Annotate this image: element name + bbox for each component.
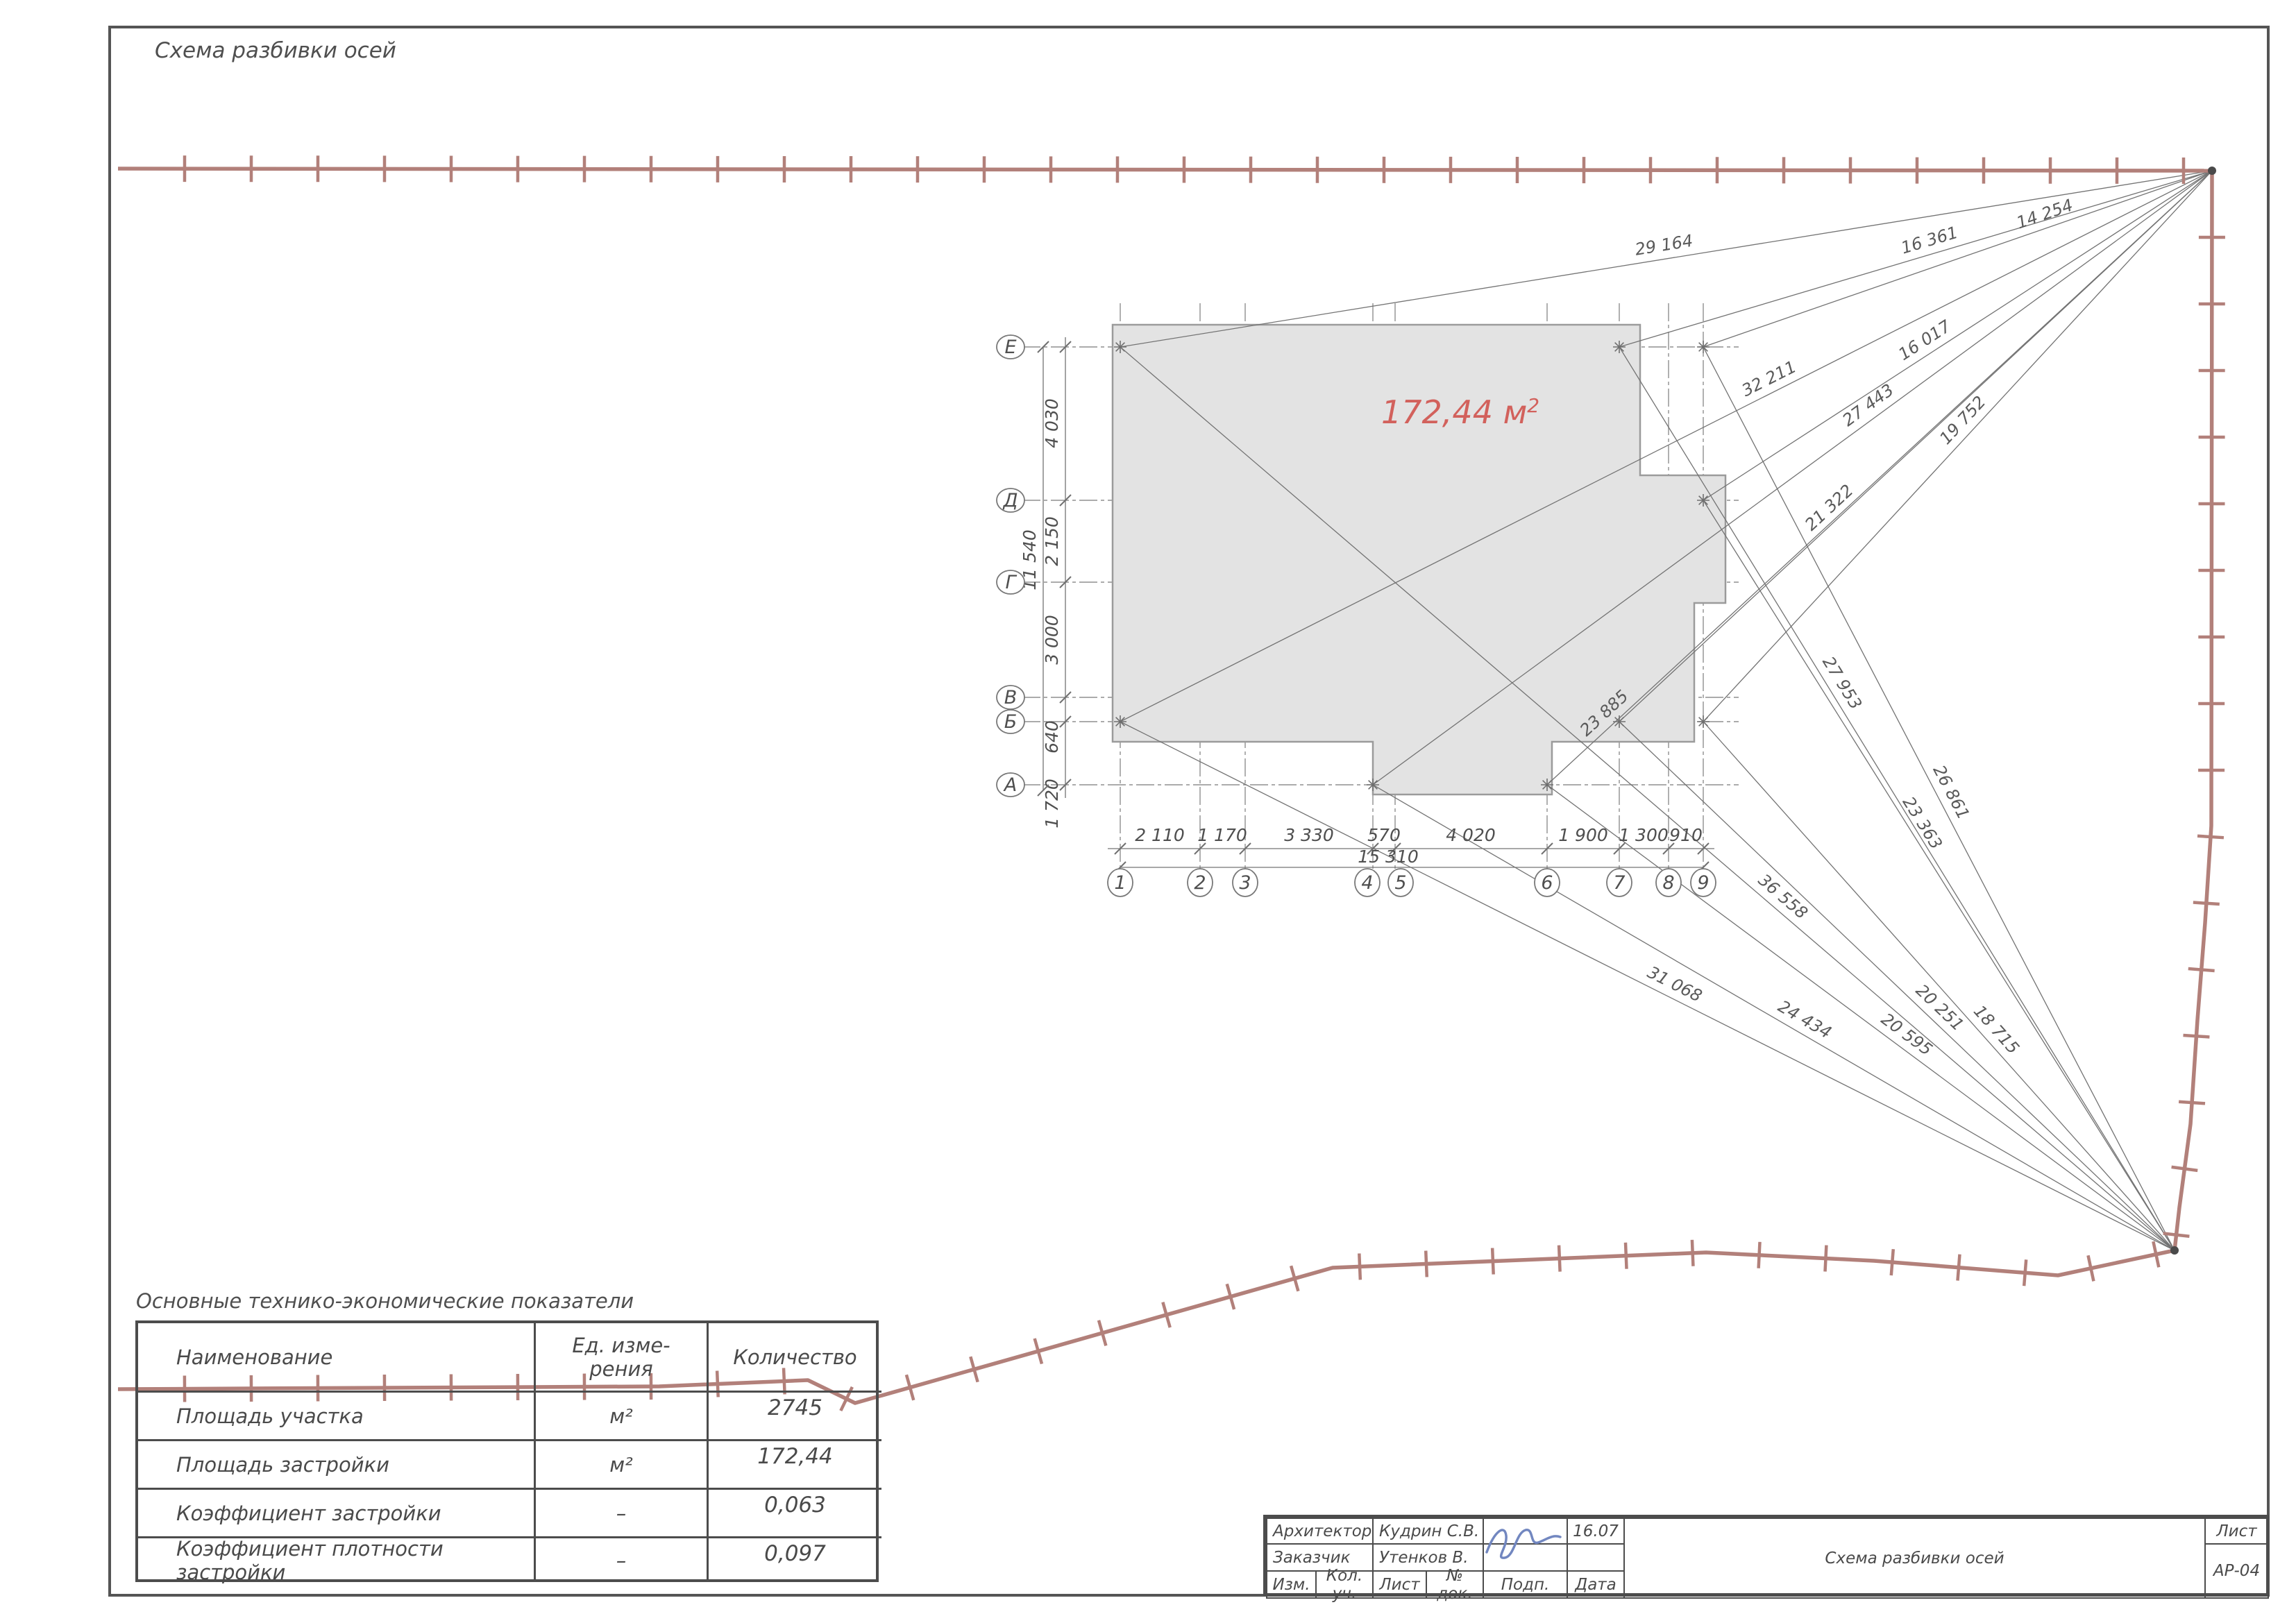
axis-grid [1022, 303, 1739, 871]
axis-label-number: 5 [1394, 872, 1406, 894]
survey-distance-label: 20 595 [1877, 1009, 1936, 1060]
axis-label-letter: Е [1004, 337, 1016, 358]
tec-header-qty: Количество [709, 1323, 881, 1393]
axis-label-number: 3 [1239, 872, 1251, 894]
dim-label-horizontal: 2 110 [1135, 825, 1185, 845]
axis-bubbles: ЕДГВБА123456789 [997, 335, 1716, 897]
tec-row-value: 172,44 [709, 1441, 881, 1490]
tec-row-name: Коэффициент застройки [138, 1490, 536, 1538]
tec-header-unit-line2: рения [572, 1357, 670, 1381]
tec-row-value: 0,063 [709, 1490, 881, 1538]
tec-header-unit-line1: Ед. изме- [572, 1334, 670, 1357]
axis-label-letter: Б [1004, 711, 1018, 733]
dim-label-vertical: 2 150 [1042, 516, 1062, 566]
axis-label-number: 7 [1613, 872, 1625, 894]
survey-distance-label: 27 443 [1839, 380, 1897, 430]
dim-label-horizontal: 1 300 [1619, 825, 1669, 845]
survey-distance-label: 26 861 [1929, 762, 1973, 822]
axis-label-number: 4 [1361, 872, 1373, 894]
tb-doc-title: Схема разбивки осей [1623, 1518, 2206, 1599]
survey-distance-label: 18 715 [1970, 1001, 2023, 1057]
survey-distance-label: 24 434 [1775, 996, 1835, 1042]
tb-label-podp: Подп. [1483, 1570, 1568, 1599]
survey-distance-label: 16 017 [1895, 316, 1955, 364]
survey-distance-label: 20 251 [1912, 980, 1968, 1035]
page-title: Схема разбивки осей [155, 38, 396, 63]
tec-row-unit: м² [536, 1393, 709, 1441]
tb-role-architect: Архитектор [1266, 1518, 1374, 1545]
tb-sheet-number: АР-04 [2204, 1543, 2269, 1599]
dim-label-vertical-total: 11 540 [1020, 529, 1040, 590]
tec-row-value: 2745 [709, 1393, 881, 1441]
tec-header-unit: Ед. изме- рения [536, 1323, 709, 1393]
dim-label-horizontal: 910 [1669, 825, 1703, 845]
tec-row-value: 0,097 [709, 1538, 881, 1582]
tb-sheet-label: Лист [2204, 1518, 2269, 1545]
boundary-corner-point [2208, 167, 2216, 175]
boundary-corner-point [2170, 1246, 2179, 1255]
dimensions: 2 1101 1703 3305704 0201 9001 30091015 3… [1020, 337, 1714, 873]
survey-distance-label: 31 068 [1644, 962, 1705, 1006]
tb-label-data: Дата [1567, 1570, 1625, 1599]
axis-label-letter: Г [1005, 572, 1017, 593]
survey-rays-bottom: 36 55827 95326 86123 36331 06820 25118 7… [1120, 347, 2175, 1250]
tb-label-ndok: № док. [1426, 1570, 1484, 1599]
survey-distance-label: 16 361 [1899, 223, 1960, 258]
axis-label-number: 9 [1697, 872, 1709, 894]
axis-label-letter: Д [1002, 490, 1018, 511]
tec-row-unit: м² [536, 1441, 709, 1490]
tec-row-unit: – [536, 1538, 709, 1582]
building-footprint [1113, 325, 1725, 794]
survey-distance-label: 36 558 [1755, 870, 1812, 923]
tec-table: Наименование Ед. изме- рения Количество … [135, 1320, 879, 1582]
axis-label-letter: В [1004, 687, 1018, 708]
survey-distance-label: 32 211 [1739, 357, 1800, 400]
tb-label-list: Лист [1372, 1570, 1427, 1599]
tec-row-unit: – [536, 1490, 709, 1538]
tb-name-architect: Кудрин С.В. [1372, 1518, 1484, 1545]
survey-distance-label: 21 322 [1801, 481, 1857, 535]
title-block: Архитектор Заказчик Кудрин С.В. Утенков … [1263, 1515, 2269, 1596]
axis-label-number: 1 [1114, 872, 1126, 894]
survey-rays-top: 29 16416 36114 25416 01732 21121 32219 7… [1120, 171, 2212, 785]
axis-label-letter: А [1003, 774, 1017, 796]
dim-label-vertical: 640 [1042, 720, 1062, 754]
survey-distance-label: 29 164 [1634, 231, 1694, 260]
building-area-label-text: 172,44 м2 [1381, 393, 1539, 431]
survey-distance-label: 14 254 [2014, 195, 2076, 232]
survey-distance-label: 23 885 [1576, 686, 1632, 740]
site-boundary [118, 155, 2225, 1411]
tec-row-name: Площадь участка [138, 1393, 536, 1441]
tec-row-name: Площадь застройки [138, 1441, 536, 1490]
area-value: 172,44 м [1381, 393, 1527, 431]
tec-table-title: Основные технико-экономические показател… [136, 1289, 634, 1313]
building-area-label: 172,44 м2 [1381, 393, 1539, 431]
signature [1474, 1509, 1578, 1572]
sheet: 172,44 м229 16416 36114 25416 01732 2112… [0, 0, 2296, 1623]
area-sup: 2 [1527, 394, 1539, 417]
tb-label-izm: Изм. [1266, 1570, 1317, 1599]
tb-label-koluch: Кол. уч. [1315, 1570, 1374, 1599]
survey-distance-label: 19 752 [1936, 392, 1990, 448]
dim-label-vertical: 4 030 [1042, 398, 1062, 448]
survey-points [1114, 341, 1710, 791]
dim-label-vertical: 1 720 [1042, 779, 1062, 829]
dim-label-horizontal: 1 170 [1197, 825, 1247, 845]
dim-label-horizontal: 3 330 [1284, 825, 1334, 845]
axis-label-number: 8 [1662, 872, 1674, 894]
survey-distance-label: 23 363 [1899, 793, 1946, 853]
tec-row-name: Коэффициент плотности застройки [138, 1538, 536, 1582]
survey-distance-label: 27 953 [1818, 653, 1866, 713]
dim-label-horizontal: 570 [1367, 825, 1401, 845]
dim-label-horizontal-total: 15 310 [1358, 847, 1418, 867]
axis-label-number: 6 [1541, 872, 1553, 894]
dim-label-horizontal: 4 020 [1446, 825, 1496, 845]
tec-header-name: Наименование [138, 1323, 536, 1393]
dim-label-horizontal: 1 900 [1558, 825, 1608, 845]
axis-label-number: 2 [1194, 872, 1206, 894]
dim-label-vertical: 3 000 [1042, 615, 1062, 665]
